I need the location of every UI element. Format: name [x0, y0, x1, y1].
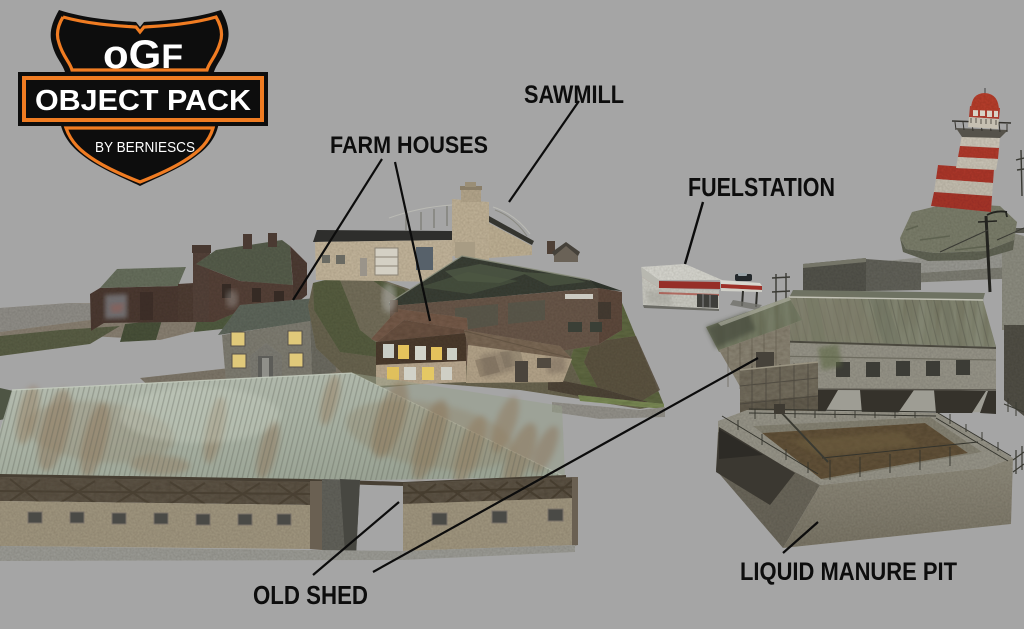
svg-text:OLD SHED: OLD SHED — [253, 580, 368, 610]
svg-text:FARM HOUSES: FARM HOUSES — [330, 132, 488, 159]
svg-text:OBJECT PACK: OBJECT PACK — [35, 85, 251, 117]
svg-text:LIQUID MANURE PIT: LIQUID MANURE PIT — [740, 558, 957, 586]
svg-text:oGF: oGF — [103, 33, 183, 77]
svg-text:BY BERNIESCS: BY BERNIESCS — [95, 139, 195, 156]
svg-text:SAWMILL: SAWMILL — [524, 81, 624, 109]
svg-text:FUELSTATION: FUELSTATION — [688, 172, 835, 202]
